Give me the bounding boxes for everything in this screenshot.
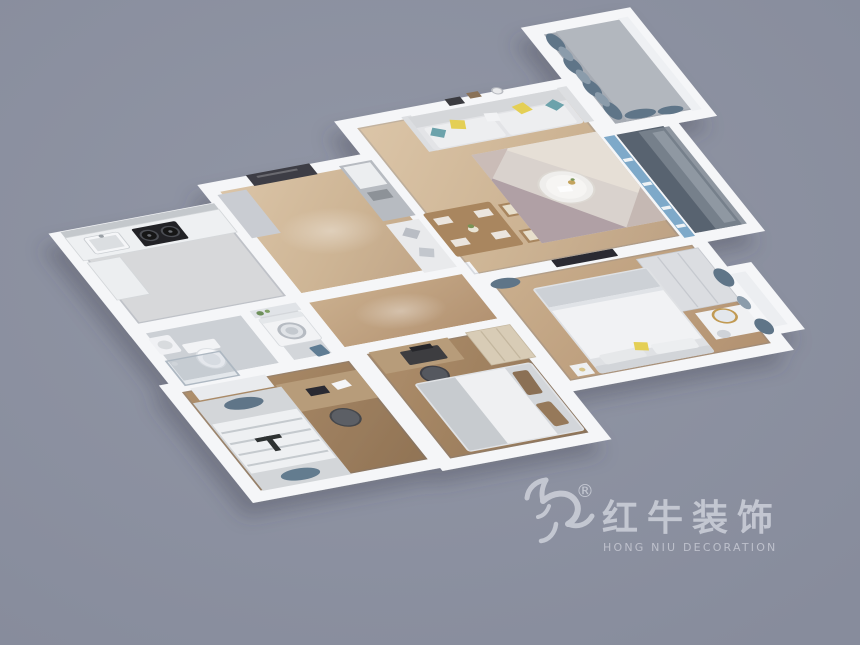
floorplan-svg: ® 红牛装饰 HONG NIU DECORATION [0, 0, 860, 645]
render-canvas: ® 红牛装饰 HONG NIU DECORATION [0, 0, 860, 645]
brand-name-en: HONG NIU DECORATION [603, 541, 777, 554]
brand-name-cn: 红牛装饰 [602, 498, 782, 539]
registered-mark: ® [576, 481, 594, 502]
